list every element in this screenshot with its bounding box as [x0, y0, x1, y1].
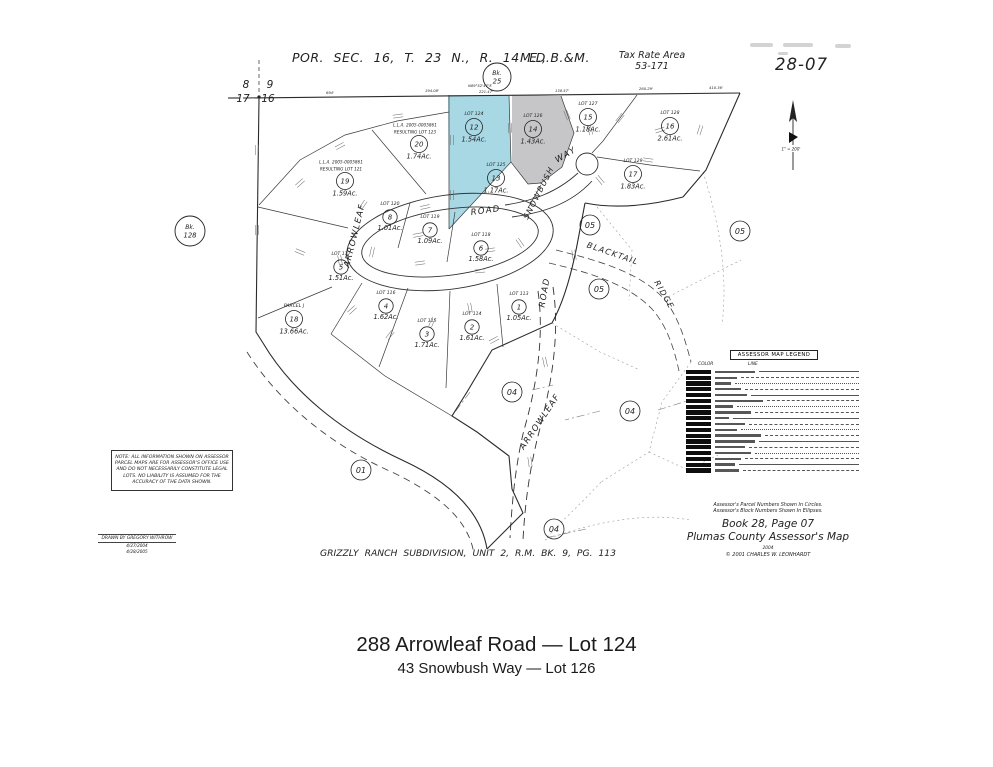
book-number: 128 — [184, 232, 198, 240]
copyright-line: © 2001 CHARLES W. LEONHARDT — [664, 552, 872, 558]
lot-acreage: 1.01Ac. — [378, 224, 403, 232]
lla-note: L.L.A. 2005-0005861 — [319, 160, 363, 165]
tax-rate-area-line2: 53-171 — [607, 61, 697, 72]
assessor-map-legend: ASSESSOR MAP LEGEND COLOR LINE — [686, 341, 862, 473]
legend-color-swatch — [686, 370, 711, 374]
block-number: 05 — [735, 227, 745, 236]
legend-entry-text — [715, 388, 741, 390]
legend-line-sample — [767, 400, 859, 401]
legend-line-sample — [759, 441, 859, 442]
lot-lot-125: LOT 125131.17Ac. — [484, 162, 509, 195]
redaction-mark — [835, 44, 851, 48]
bearing-mark — [295, 249, 305, 256]
road-label-road: ROAD — [470, 204, 501, 218]
legend-line-sample — [739, 464, 859, 465]
lot-acreage: 1.05Ac. — [507, 314, 532, 322]
section-number-se: 16 — [261, 93, 275, 105]
lot-acreage: 1.58Ac. — [469, 255, 494, 263]
distance-label: 694' — [326, 91, 334, 95]
book-label: Bk. — [185, 224, 195, 231]
block-circle-05: 05 — [589, 279, 609, 299]
road-label-arrowleaf: ARROWLEAF — [517, 392, 562, 453]
section-corner — [257, 60, 260, 99]
scale-label: 1" = 200' — [781, 147, 800, 152]
map-year: 2004 — [664, 546, 872, 551]
legend-line-sample — [759, 371, 859, 372]
parcel-number: 18 — [290, 316, 299, 324]
legend-color-swatch — [686, 381, 711, 385]
legend-color-swatch — [686, 457, 711, 461]
legend-entry-text — [715, 394, 747, 396]
lot-number-label: LOT 114 — [462, 311, 481, 317]
block-number: 05 — [585, 221, 595, 230]
legend-color-swatch — [686, 439, 711, 443]
legend-line-sample — [735, 383, 859, 384]
lot-acreage: 1.59Ac. — [333, 190, 358, 198]
disclaimer-note: NOTE: ALL INFORMATION SHOWN ON ASSESSOR … — [111, 450, 233, 491]
legend-color-swatch — [686, 387, 711, 391]
legend-color-swatch — [686, 416, 711, 420]
legend-line-sample — [755, 412, 859, 413]
book-label: Bk. — [492, 70, 502, 77]
bearing-mark — [516, 238, 524, 248]
parcel-number: 17 — [629, 171, 638, 179]
bearing-mark — [542, 357, 547, 367]
block-number: 01 — [356, 466, 366, 475]
parcel-number: 6 — [479, 245, 484, 253]
legend-line-sample — [743, 470, 859, 471]
bearing-mark — [697, 125, 703, 135]
bearing-mark — [369, 247, 374, 257]
tax-rate-area-line1: Tax Rate Area — [607, 50, 697, 61]
drawn-by-line: DRAWN BY GREGORY WITHROW — [98, 534, 176, 543]
lot-number-label: LOT 124 — [464, 111, 483, 117]
block-number: 04 — [549, 525, 559, 534]
lot-number-label: LOT 128 — [660, 110, 679, 116]
legend-entry-text — [715, 371, 755, 373]
lot-lot-126: LOT 126141.43Ac. — [521, 113, 546, 146]
book-circle-128: Bk.128 — [175, 216, 205, 246]
lot-number-label: LOT 125 — [486, 162, 505, 168]
legend-entry-text — [715, 405, 733, 407]
lot-lot-119: LOT 11971.09Ac. — [418, 214, 443, 245]
block-number: 04 — [625, 407, 635, 416]
lot-parcel-j: PARCEL J1813.66Ac. — [279, 303, 308, 336]
parcel-number: 8 — [388, 214, 393, 222]
legend-entry-text — [715, 463, 735, 465]
legend-rows — [686, 369, 862, 473]
legend-entry-text — [715, 382, 731, 384]
legend-line-sample — [745, 389, 859, 390]
bearing-mark — [335, 142, 345, 149]
block-number-note: Assessor's Block Numbers Shown In Ellips… — [664, 508, 872, 514]
lot-acreage: 1.18Ac. — [576, 126, 601, 134]
lot-acreage: 1.71Ac. — [415, 341, 440, 349]
legend-color-swatch — [686, 393, 711, 397]
lot-acreage: 1.83Ac. — [621, 183, 646, 191]
lot-lot-118: LOT 11861.58Ac. — [469, 232, 494, 263]
block-circle-05: 05 — [580, 215, 600, 235]
redaction-mark — [783, 43, 813, 47]
legend-entry-text — [715, 377, 737, 379]
parcel-number: 12 — [470, 124, 479, 132]
legend-color-swatch — [686, 399, 711, 403]
legend-entry-text — [715, 452, 751, 454]
lot-number-label: LOT 116 — [376, 290, 395, 296]
legend-line-sample — [749, 447, 859, 448]
lot-acreage: 1.51Ac. — [329, 274, 354, 282]
block-circle-04: 04 — [620, 401, 640, 421]
legend-color-swatch — [686, 422, 711, 426]
legend-entry-text — [715, 458, 741, 460]
parcel-number: 2 — [470, 324, 475, 332]
bearing-mark — [420, 204, 430, 209]
tax-rate-area: Tax Rate Area 53-171 — [607, 50, 697, 72]
distance-label: N89°52'47"E — [468, 84, 492, 88]
legend-line-sample — [745, 458, 859, 459]
lot-number-label: LOT 129 — [623, 158, 642, 164]
lot-acreage: 1.74Ac. — [407, 153, 432, 161]
legend-row — [686, 468, 862, 474]
distance-label: 260.29' — [639, 87, 653, 91]
lot-lot-114: LOT 11421.61Ac. — [460, 311, 485, 342]
subdivision-title: GRIZZLY RANCH SUBDIVISION, UNIT 2, R.M. … — [318, 548, 618, 559]
legend-color-swatch — [686, 451, 711, 455]
lot-number-label: LOT 119 — [420, 214, 439, 220]
legend-line-sample — [749, 424, 859, 425]
legend-entry-text — [715, 423, 745, 425]
legend-color-header: COLOR — [698, 362, 713, 367]
lot-number-label: LOT 113 — [509, 291, 528, 297]
parcel-number: 3 — [425, 331, 429, 339]
lot-number-label: LOT 120 — [380, 201, 399, 207]
bearing-mark — [386, 330, 395, 340]
bearing-mark — [485, 248, 495, 252]
lot-number-label: PARCEL J — [284, 303, 305, 309]
lot-acreage: 1.61Ac. — [460, 334, 485, 342]
parcel-number: 15 — [584, 114, 593, 122]
distance-label: 194.08' — [425, 89, 439, 93]
block-circle-05: 05 — [730, 221, 750, 241]
boundary-offset-dashed — [247, 352, 474, 554]
legend-color-swatch — [686, 405, 711, 409]
footer-block: Assessor's Parcel Numbers Shown In Circl… — [664, 502, 872, 558]
bearing-mark — [393, 114, 403, 118]
block-leader-lines — [452, 385, 690, 538]
lot-acreage: 13.66Ac. — [279, 328, 308, 336]
legend-line-sample — [751, 395, 859, 396]
parcel-number: 7 — [428, 227, 433, 235]
blacktail-ridge-road — [549, 250, 691, 371]
lot-number-label: LOT 118 — [471, 232, 490, 238]
lot-lot-123: L.L.A. 2005-0005861RESULTING LOT 123201.… — [393, 123, 437, 161]
lot-lot-120: LOT 12081.01Ac. — [378, 201, 403, 232]
legend-entry-text — [715, 446, 745, 448]
section-number-ne: 9 — [267, 79, 274, 91]
lot-acreage: 1.43Ac. — [521, 138, 546, 146]
parcel-number: 13 — [492, 175, 501, 183]
legend-color-swatch — [686, 463, 711, 467]
road-label-ridge: RIDGE — [652, 279, 676, 311]
legend-line-sample — [755, 453, 859, 454]
lla-note: RESULTING LOT 121 — [320, 167, 363, 172]
bearing-mark — [528, 457, 532, 467]
legend-entry-text — [715, 429, 737, 431]
drawn-by-date2: 4/28/2005 — [98, 549, 176, 555]
north-arrow — [779, 100, 803, 170]
parcel-number: 16 — [666, 123, 675, 131]
lot-acreage: 1.17Ac. — [484, 187, 509, 195]
legend-color-swatch — [686, 376, 711, 380]
legend-line-sample — [733, 418, 859, 419]
lot-number-label: LOT 126 — [523, 113, 542, 119]
county-map-label: Plumas County Assessor's Map — [664, 531, 872, 543]
lot-lot-113: LOT 11311.05Ac. — [507, 291, 532, 322]
distance-label: 410.36' — [709, 86, 723, 90]
legend-entry-text — [715, 417, 729, 419]
legend-line-sample — [765, 435, 859, 436]
legend-entry-text — [715, 440, 755, 442]
meridian-label: M.D.B.&M. — [520, 50, 590, 65]
lot-lot-127: LOT 127151.18Ac. — [576, 101, 601, 134]
section-number-sw: 17 — [236, 93, 250, 105]
bearing-mark — [347, 306, 356, 315]
parcel-number: 14 — [529, 126, 538, 134]
lot-lot-128: LOT 128162.61Ac. — [658, 110, 683, 143]
legend-line-header: LINE — [748, 362, 758, 367]
parcel-number: 20 — [415, 141, 424, 149]
legend-color-swatch — [686, 434, 711, 438]
bearing-mark — [596, 175, 605, 185]
lot-lot-124: LOT 124121.54Ac. — [462, 111, 487, 144]
distance-label: 221.47' — [479, 90, 493, 94]
lot-acreage: 1.62Ac. — [374, 313, 399, 321]
bearing-mark — [415, 261, 425, 265]
legend-color-swatch — [686, 410, 711, 414]
legend-entry-text — [715, 400, 763, 402]
lla-note: RESULTING LOT 123 — [394, 130, 437, 135]
legend-title: ASSESSOR MAP LEGEND — [730, 350, 818, 360]
legend-entry-text — [715, 434, 761, 436]
caption-address-lot126: 43 Snowbush Way — Lot 126 — [0, 660, 993, 677]
drawn-by-block: DRAWN BY GREGORY WITHROW 4/27/2004 4/28/… — [98, 534, 176, 555]
map-page-number: 28-07 — [775, 55, 828, 74]
block-number: 05 — [594, 285, 604, 294]
parcel-number: 1 — [517, 304, 521, 312]
legend-entry-text — [715, 411, 751, 413]
block-number: 04 — [507, 388, 517, 397]
road-label-blacktail: BLACKTAIL — [586, 241, 640, 267]
bearing-mark — [489, 336, 499, 343]
lot-number-label: LOT 127 — [578, 101, 597, 107]
lot-acreage: 1.54Ac. — [462, 136, 487, 144]
lot-acreage: 1.09Ac. — [418, 237, 443, 245]
parcel-number: 19 — [341, 178, 350, 186]
lot-lot-129: LOT 129171.83Ac. — [621, 158, 646, 191]
legend-color-swatch — [686, 468, 711, 472]
section-number-nw: 8 — [243, 79, 250, 91]
bearing-mark — [295, 179, 304, 188]
parcel-number: 4 — [384, 303, 388, 311]
lot-acreage: 2.61Ac. — [658, 135, 683, 143]
road-label-road: ROAD — [537, 277, 552, 308]
lot-lot-121: L.L.A. 2005-0005861RESULTING LOT 121191.… — [319, 160, 363, 198]
assessor-map-page: LOT 124121.54Ac.LOT 126141.43Ac.LOT 1251… — [0, 0, 993, 767]
legend-line-sample — [737, 406, 859, 407]
block-circle-01: 01 — [351, 460, 371, 480]
lot-number-label: LOT 115 — [417, 318, 436, 324]
caption-address-lot124: 288 Arrowleaf Road — Lot 124 — [0, 633, 993, 657]
block-circle-04: 04 — [502, 382, 522, 402]
lot-lot-116: LOT 11641.62Ac. — [374, 290, 399, 321]
redaction-mark — [778, 52, 788, 55]
legend-color-swatch — [686, 445, 711, 449]
section-title: POR. SEC. 16, T. 23 N., R. 14 E., — [292, 50, 546, 65]
legend-line-sample — [741, 377, 859, 378]
bearing-mark — [643, 158, 653, 162]
book-page-label: Book 28, Page 07 — [664, 518, 872, 530]
redaction-mark — [750, 43, 773, 47]
lla-note: L.L.A. 2005-0005861 — [393, 123, 437, 128]
book-number: 25 — [493, 78, 502, 86]
legend-color-swatch — [686, 428, 711, 432]
distance-label: 138.57' — [555, 89, 569, 93]
legend-entry-text — [715, 469, 739, 471]
legend-line-sample — [741, 429, 859, 430]
lot-lot-115: LOT 11531.71Ac. — [415, 318, 440, 349]
